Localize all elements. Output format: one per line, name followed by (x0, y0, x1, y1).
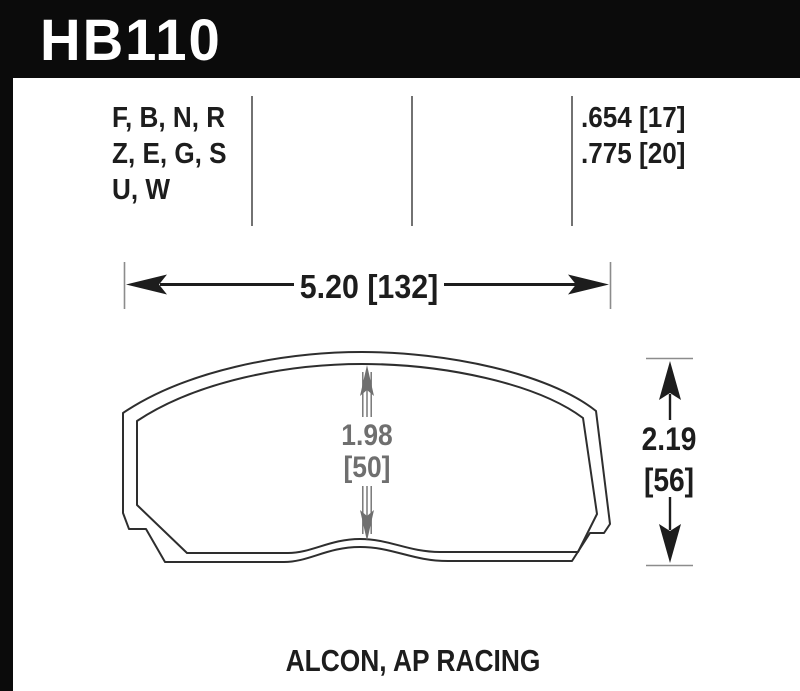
compound-codes-line-3: U, W (112, 172, 227, 208)
pad-thickness-line-2: .775 [20] (581, 136, 685, 172)
applications-label: ALCON, AP RACING (281, 643, 545, 679)
spec-table-dividers (252, 96, 572, 226)
friction-height-label: 1.98 [50] (279, 420, 455, 484)
width-dimension-label: 5.20 [132] (231, 268, 507, 306)
pad-thickness-line-1: .654 [17] (581, 100, 685, 136)
pad-thickness-values: .654 [17] .775 [20] (581, 100, 685, 172)
compound-codes: F, B, N, R Z, E, G, S U, W (112, 100, 227, 208)
overall-height-mm: [56] (581, 460, 757, 501)
compound-codes-line-2: Z, E, G, S (112, 136, 227, 172)
friction-height-inches: 1.98 (279, 420, 455, 452)
friction-height-mm: [50] (279, 452, 455, 484)
overall-height-inches: 2.19 (581, 419, 757, 460)
brake-pad-spec-diagram: HB110 (0, 0, 800, 691)
compound-codes-line-1: F, B, N, R (112, 100, 227, 136)
overall-height-label: 2.19 [56] (581, 419, 757, 501)
